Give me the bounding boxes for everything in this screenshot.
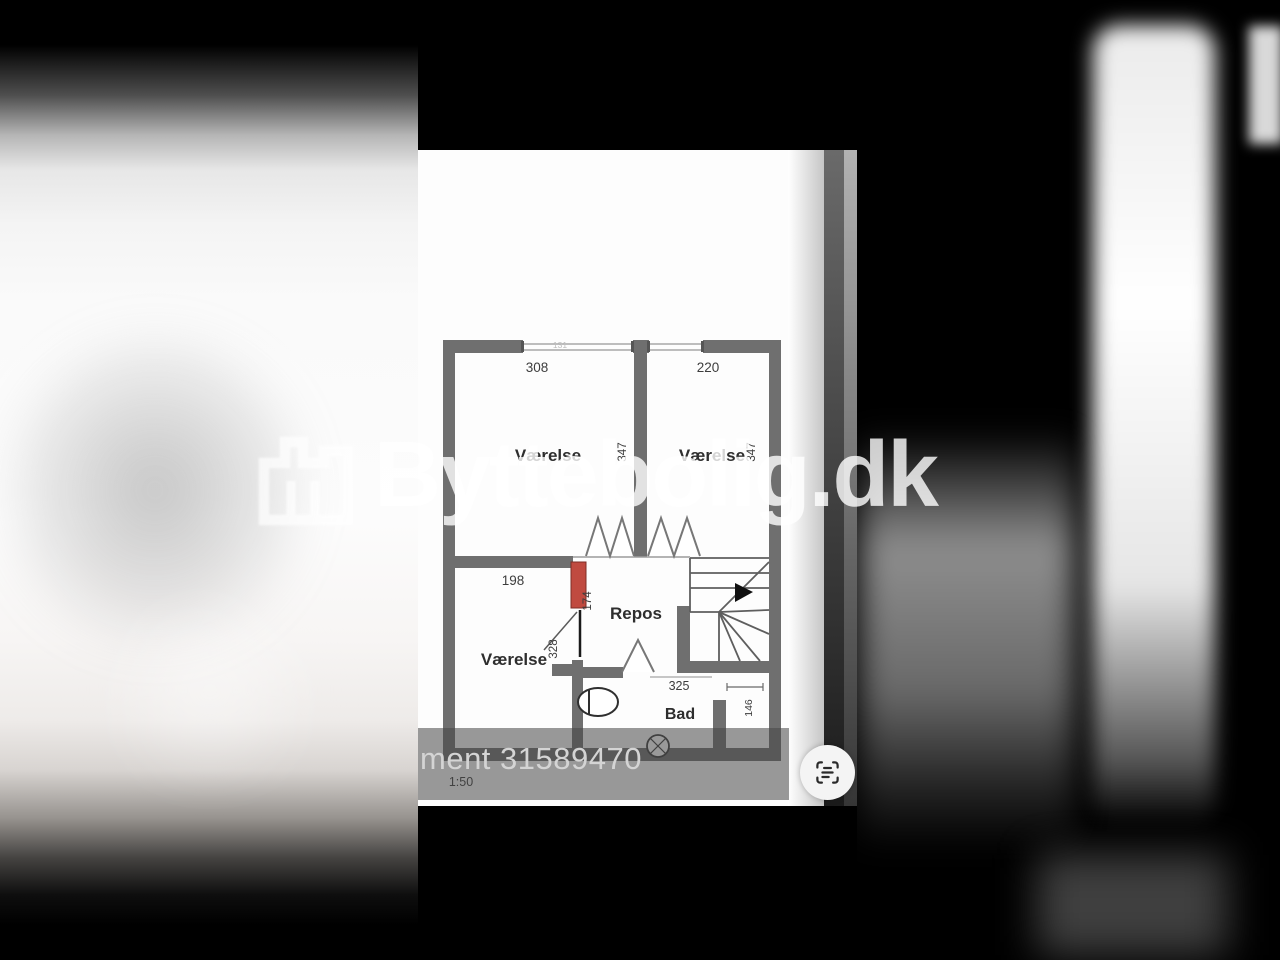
- dim-room1-depth: 347: [617, 442, 629, 461]
- caption-bar: ment 31589470: [418, 728, 789, 800]
- background-blob: [1093, 25, 1215, 825]
- background-blob: [60, 560, 360, 820]
- scan-text-icon: [814, 759, 841, 786]
- room2-label: Værelse: [679, 446, 745, 465]
- bad-label: Bad: [665, 706, 695, 723]
- letterbox-bottom: [418, 806, 857, 960]
- dim-room3-width: 198: [502, 573, 525, 588]
- background-blob: [1037, 855, 1227, 955]
- dim-window-width: 131: [553, 340, 567, 350]
- dim-bad-niche: 146: [743, 699, 755, 717]
- dim-repos-door: 174: [582, 591, 594, 611]
- dim-room3-depth: 328: [548, 639, 560, 658]
- background-blob: [860, 430, 1075, 850]
- room1-label: Værelse: [515, 446, 581, 465]
- dim-room1-width: 308: [526, 360, 549, 375]
- caption-text: ment 31589470: [420, 741, 642, 777]
- repos-label: Repos: [610, 604, 662, 623]
- photo-viewer-strip: 308 220 131 Værelse 347 Værelse 347 198 …: [418, 0, 857, 960]
- screenshot-stage: 308 220 131 Værelse 347 Værelse 347 198 …: [0, 0, 1280, 960]
- toilet-icon: [578, 688, 618, 716]
- dim-room2-width: 220: [697, 360, 720, 375]
- background-blur-right: [857, 0, 1280, 960]
- dim-bad-width: 325: [669, 679, 690, 693]
- letterbox-top: [418, 0, 857, 150]
- background-blur-left: [0, 0, 418, 960]
- room3-label: Værelse: [481, 650, 547, 669]
- scan-text-button[interactable]: [800, 745, 855, 800]
- dim-room2-depth: 347: [746, 442, 758, 461]
- background-blob: [1249, 26, 1280, 144]
